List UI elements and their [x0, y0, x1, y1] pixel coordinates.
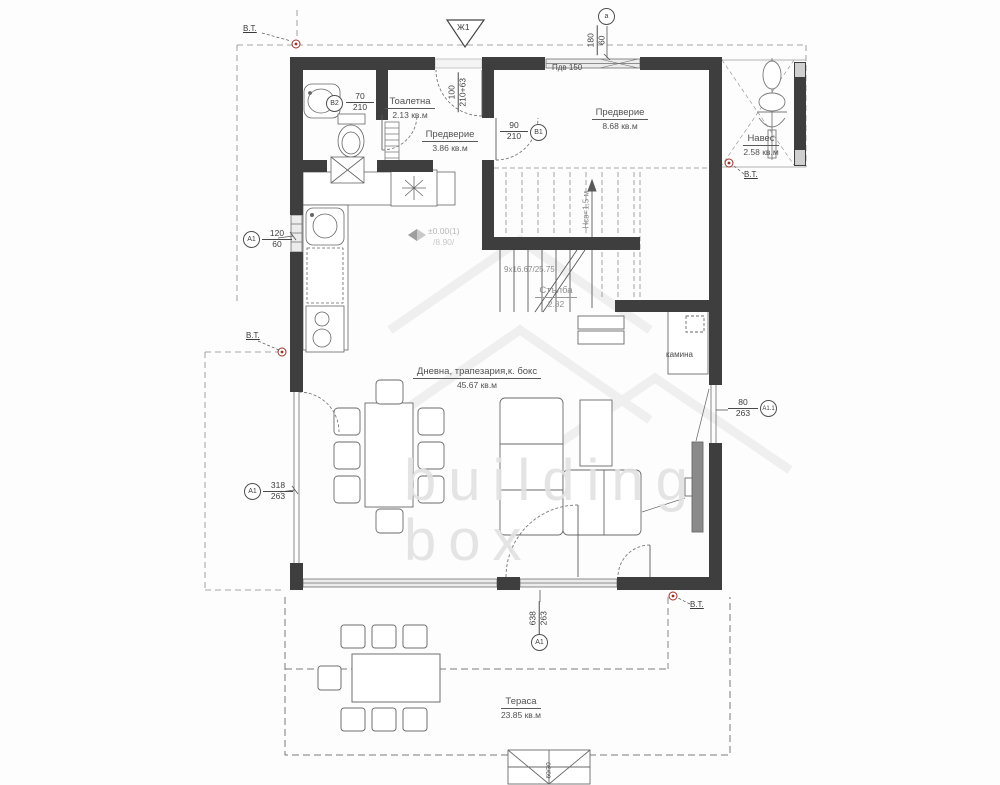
tag-height: 60: [262, 240, 292, 250]
floor-plan-page: building box Тоалетна 2.13 кв.м Предвери…: [0, 0, 1000, 785]
room-name: Дневна, трапезария,к. бокс: [413, 366, 541, 379]
room-area: 23.85 кв.м: [482, 710, 560, 720]
elevation-symbol: [408, 229, 426, 241]
terrace-furniture: [318, 625, 440, 731]
room-label-vestibule-large: Предверие 8.68 кв.м: [578, 101, 662, 132]
room-label-stairs: Стълба 2.82: [525, 279, 587, 310]
ref-circle-toilet-door: В2: [326, 95, 343, 112]
room-label-terrace: Тераса 23.85 кв.м: [482, 690, 560, 721]
ref-circle-hall-door: В1: [530, 124, 547, 141]
steps-dimension-label: 60/30: [546, 753, 553, 779]
ref-circle-axis: а: [598, 8, 615, 25]
tag-hall-door: 90 210: [500, 121, 528, 142]
room-area: 45.67 кв.м: [392, 380, 562, 390]
watermark-text-line2: box: [404, 512, 534, 570]
room-name: Предверие: [592, 107, 649, 120]
vt-label-top-left: В.Т.: [243, 24, 257, 33]
tag-kitchen-window: 120 60: [262, 229, 292, 250]
tag-height: 210: [500, 132, 528, 142]
room-area: 2.13 кв.м: [368, 110, 452, 120]
room-label-vestibule-small: Предверие 3.86 кв.м: [408, 123, 492, 154]
ref-circle-kitchen-window: А1: [243, 231, 260, 248]
tag-bottom-window: 638 263: [529, 601, 550, 635]
kitchen-counter: [303, 170, 455, 352]
tag-height: 210+63: [459, 72, 469, 112]
tag-height: 263: [728, 409, 758, 419]
tag-top-window: 180 60: [587, 25, 608, 55]
room-name: Навес: [743, 133, 778, 146]
room-name: Стълба: [535, 285, 576, 298]
tag-toilet-door: 70 210: [346, 92, 374, 113]
fireplace-label: камина: [666, 350, 693, 359]
room-area: 2.58 кв.м: [728, 147, 794, 157]
tag-left-window: 318 263: [263, 481, 293, 502]
vt-label-terrace: В.Т.: [690, 600, 704, 609]
floorplan-drawing: [0, 0, 1000, 785]
ref-circle-right-window: А1.1: [760, 400, 777, 417]
ref-circle-left-window: А1: [244, 483, 261, 500]
tag-height: 210: [346, 103, 374, 113]
tag-height: 60: [598, 25, 608, 55]
tag-right-window: 80 263: [728, 398, 758, 419]
elevation-level: ±0.00(1): [428, 226, 460, 236]
vt-label-left: В.Т.: [246, 331, 260, 340]
room-name: Тераса: [501, 696, 540, 709]
stair-dimension-label: 9x16.67/25.75: [504, 265, 555, 274]
window-sill-label: Пдв 150: [552, 63, 582, 72]
watermark-text-line1: building: [404, 452, 700, 510]
room-name: Тоалетна: [385, 96, 434, 109]
vt-label-canopy: В.Т.: [744, 170, 758, 179]
section-marker-label: Ж1: [457, 22, 470, 32]
tag-height: 263: [263, 492, 293, 502]
elevation-alt: /8.90/: [433, 237, 454, 247]
room-label-living: Дневна, трапезария,к. бокс 45.67 кв.м: [392, 360, 562, 391]
room-area: 2.82: [525, 299, 587, 309]
room-label-canopy: Навес 2.58 кв.м: [728, 127, 794, 158]
ref-circle-bottom-window: А1: [531, 634, 548, 651]
room-area: 3.86 кв.м: [408, 143, 492, 153]
room-label-toilet: Тоалетна 2.13 кв.м: [368, 90, 452, 121]
room-name: Предверие: [422, 129, 479, 142]
clear-height-label: Нсв=1,5 м: [582, 177, 591, 229]
tag-height: 263: [540, 601, 550, 635]
tag-entry-door: 100 210+63: [448, 72, 469, 112]
room-area: 8.68 кв.м: [578, 121, 662, 131]
